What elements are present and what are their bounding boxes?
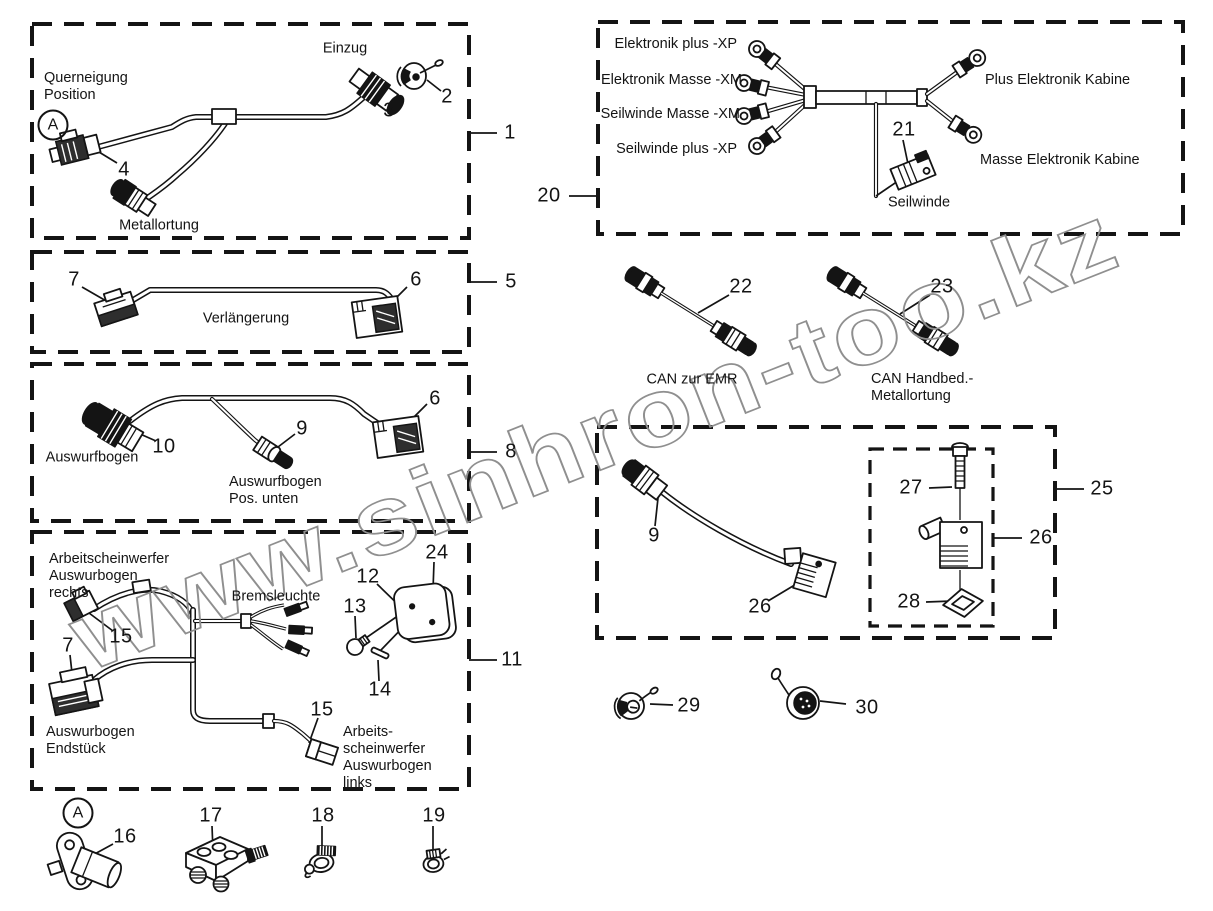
part-number-6: 6: [410, 269, 422, 292]
label-querneigung-position: Querneigung Position: [44, 70, 128, 104]
label-auswurfbogen-pos-unten: Auswurfbogen Pos. unten: [229, 474, 322, 508]
part-number-15-unten: 15: [310, 699, 333, 722]
ref-number-1: 1: [504, 122, 516, 145]
ref-number-5: 5: [505, 271, 517, 294]
part-number-10: 10: [152, 436, 175, 459]
part-number-26-rechts: 26: [1029, 527, 1052, 550]
part-number-9b: 9: [648, 525, 660, 548]
ref-number-25: 25: [1090, 478, 1113, 501]
label-bremsleuchte: Bremsleuchte: [232, 589, 321, 606]
connector-6: [352, 296, 403, 338]
spade-terminal: [285, 640, 309, 657]
part-number-27: 27: [899, 477, 922, 500]
label-elektronik-plus-xp: Elektronik plus -XP: [615, 36, 738, 52]
label-arbeitscheinwerfer-rechts: Arbeitscheinwerfer Auswurbogen rechts: [49, 551, 169, 602]
screw-27: [952, 443, 968, 488]
part-number-16: 16: [113, 826, 136, 849]
ring-terminal-masse-kabine: [948, 115, 984, 146]
cap-30-art: [770, 667, 819, 719]
part-number-2: 2: [441, 86, 453, 109]
part-number-30: 30: [855, 697, 878, 720]
label-verlaengerung: Verlängerung: [203, 311, 289, 328]
label-auswurbogen-endstueck: Auswurbogen Endstück: [46, 724, 135, 758]
ref-number-20: 20: [537, 185, 560, 208]
diagram-canvas: www.sinhron-too.kz: [0, 0, 1213, 911]
cap-2: [397, 59, 443, 89]
part-number-4: 4: [118, 159, 130, 182]
lamp-24: [393, 582, 457, 645]
ref-number-8: 8: [505, 441, 517, 464]
label-seilwinde-masse-xm: Seilwinde Masse -XM: [601, 106, 740, 122]
part-number-14: 14: [368, 679, 391, 702]
label-masse-elektronik-kabine: Masse Elektronik Kabine: [980, 152, 1140, 168]
part-number-3: 3: [383, 100, 395, 123]
part-number-15-oben: 15: [109, 626, 132, 649]
label-plus-elektronik-kabine: Plus Elektronik Kabine: [985, 72, 1130, 88]
seal-28: [942, 587, 985, 619]
part-number-6b: 6: [429, 388, 441, 411]
valve-connector-26: [775, 544, 837, 597]
part-number-7b: 7: [62, 635, 74, 658]
label-elektronik-masse-xm: Elektronik Masse -XM: [601, 72, 742, 88]
connector-7: [92, 286, 137, 326]
seilwinde-harness-art: [734, 38, 988, 196]
label-arbeitscheinwerfer-links: Arbeits- scheinwerfer Auswurbogen links: [343, 724, 432, 792]
part-number-18: 18: [311, 805, 334, 828]
pin-14: [371, 647, 389, 659]
part-number-13: 13: [343, 596, 366, 619]
round-plug-3: [347, 65, 408, 120]
spade-terminal: [289, 625, 312, 634]
connector-15-unten: [306, 739, 338, 765]
part-number-22: 22: [729, 276, 752, 299]
clamp-18-art: [301, 843, 340, 878]
part-number-24: 24: [425, 542, 448, 565]
part-number-12: 12: [356, 566, 379, 589]
marker-a-unten: A: [63, 798, 94, 829]
part-number-28: 28: [897, 591, 920, 614]
part-number-17: 17: [199, 805, 222, 828]
part-number-19: 19: [422, 805, 445, 828]
parts-diagram-page: www.sinhron-too.kz Einzug Querneigung Po…: [0, 0, 1213, 911]
valve-connector-26b: [917, 518, 982, 568]
box-1-outline: [32, 24, 469, 238]
label-seilwinde: Seilwinde: [888, 195, 950, 212]
label-can-handbed-metallortung: CAN Handbed.- Metallortung: [871, 371, 973, 405]
label-einzug: Einzug: [323, 41, 367, 58]
seilwinde-connector-21: [889, 151, 936, 190]
part-number-23: 23: [930, 276, 953, 299]
part-number-26-links: 26: [748, 596, 771, 619]
fastener-kit-art: [917, 443, 984, 619]
label-seilwinde-plus-xp: Seilwinde plus -XP: [616, 141, 737, 157]
marker-a-box1: A: [38, 110, 69, 141]
label-metallortung: Metallortung: [119, 218, 199, 235]
part-number-21: 21: [892, 119, 915, 142]
ref-number-11: 11: [501, 649, 523, 672]
part-number-7: 7: [68, 269, 80, 292]
clamp-19-art: [422, 848, 452, 874]
part-number-29: 29: [677, 695, 700, 718]
connector-9: [253, 437, 295, 472]
ring-terminal-seilwinde-xp: [746, 125, 781, 157]
part-number-9: 9: [296, 418, 308, 441]
ring-terminal-xp: [746, 38, 781, 70]
block-17-art: [186, 837, 268, 892]
label-can-zur-emr: CAN zur EMR: [646, 372, 737, 389]
round-plug-10: [77, 397, 146, 456]
label-auswurfbogen: Auswurfbogen: [46, 450, 139, 467]
watermark-text: www.sinhron-too.kz: [55, 181, 1133, 691]
ring-terminal-plus-kabine: [952, 47, 988, 78]
